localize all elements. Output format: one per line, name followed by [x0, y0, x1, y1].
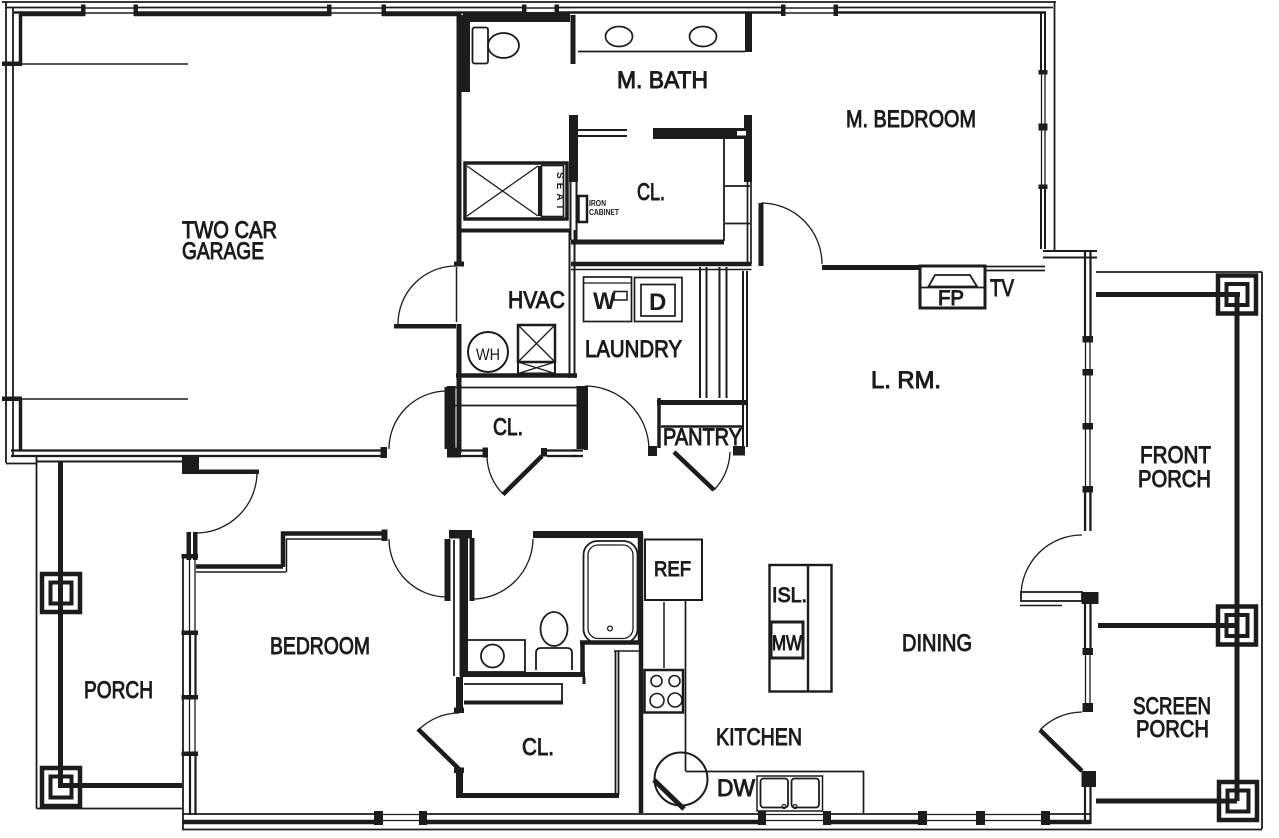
svg-text:BEDROOM: BEDROOM	[270, 633, 370, 660]
svg-text:DW: DW	[717, 775, 756, 802]
svg-text:LAUNDRY: LAUNDRY	[585, 336, 682, 363]
svg-text:DINING: DINING	[902, 630, 972, 657]
svg-text:GARAGE: GARAGE	[182, 238, 264, 265]
svg-text:PANTRY: PANTRY	[663, 424, 742, 451]
svg-text:HVAC: HVAC	[508, 287, 565, 314]
svg-text:L. RM.: L. RM.	[871, 367, 941, 394]
svg-text:M. BEDROOM: M. BEDROOM	[846, 106, 976, 133]
svg-text:MW: MW	[772, 632, 802, 655]
svg-text:PORCH: PORCH	[1136, 716, 1209, 743]
svg-text:FRONT: FRONT	[1140, 442, 1211, 469]
svg-text:M. BATH: M. BATH	[617, 67, 708, 94]
svg-text:CABINET: CABINET	[589, 208, 619, 217]
svg-text:W: W	[593, 288, 616, 315]
svg-text:FP: FP	[938, 287, 964, 310]
svg-text:KITCHEN: KITCHEN	[716, 724, 802, 751]
svg-text:REF: REF	[654, 558, 691, 581]
svg-text:PORCH: PORCH	[84, 677, 153, 704]
svg-text:TV: TV	[990, 275, 1015, 302]
svg-text:CL.: CL.	[637, 179, 665, 206]
svg-text:IRON: IRON	[589, 199, 606, 208]
svg-text:PORCH: PORCH	[1138, 466, 1211, 493]
svg-text:D: D	[649, 289, 666, 316]
svg-text:WH: WH	[476, 345, 500, 364]
svg-text:CL.: CL.	[493, 414, 523, 441]
svg-text:ISL.: ISL.	[772, 584, 807, 607]
svg-text:CL.: CL.	[522, 734, 554, 761]
